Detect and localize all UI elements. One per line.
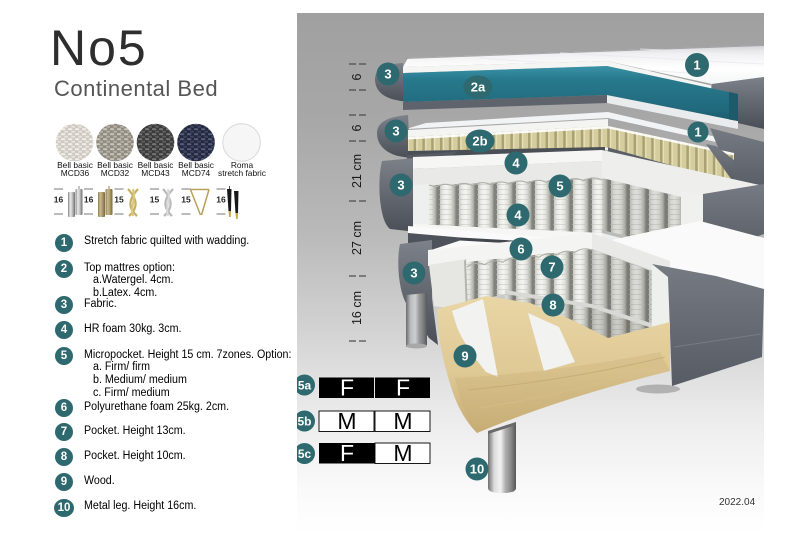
svg-text:M: M (393, 408, 412, 434)
svg-text:2b: 2b (472, 134, 487, 149)
svg-text:15: 15 (150, 195, 160, 205)
svg-text:4: 4 (514, 208, 522, 223)
svg-text:15: 15 (181, 195, 191, 205)
svg-text:15: 15 (114, 195, 124, 205)
svg-text:21 cm: 21 cm (350, 154, 364, 188)
svg-text:1: 1 (693, 58, 700, 73)
svg-text:5: 5 (556, 179, 563, 194)
svg-text:27 cm: 27 cm (350, 221, 364, 255)
svg-text:16: 16 (216, 195, 226, 205)
svg-text:16: 16 (84, 195, 94, 205)
svg-text:7: 7 (548, 260, 555, 275)
svg-text:9: 9 (461, 349, 468, 364)
svg-text:F: F (340, 440, 354, 466)
svg-text:F: F (396, 375, 410, 401)
svg-text:5c: 5c (298, 447, 312, 461)
svg-text:6: 6 (350, 124, 364, 131)
svg-text:3: 3 (384, 67, 391, 82)
svg-text:1: 1 (694, 125, 701, 140)
svg-text:3: 3 (410, 266, 417, 281)
svg-text:6: 6 (517, 242, 524, 257)
svg-text:F: F (340, 375, 354, 401)
svg-text:10: 10 (470, 462, 484, 477)
svg-text:M: M (393, 440, 412, 466)
svg-text:16: 16 (54, 195, 64, 205)
svg-text:16 cm: 16 cm (350, 291, 364, 325)
svg-text:2a: 2a (471, 80, 486, 95)
svg-text:8: 8 (549, 298, 556, 313)
svg-text:5b: 5b (297, 415, 311, 429)
svg-text:3: 3 (397, 178, 404, 193)
svg-text:5a: 5a (298, 379, 312, 393)
svg-text:M: M (337, 408, 356, 434)
svg-text:6: 6 (350, 73, 364, 80)
svg-text:3: 3 (392, 124, 399, 139)
svg-text:4: 4 (512, 156, 520, 171)
